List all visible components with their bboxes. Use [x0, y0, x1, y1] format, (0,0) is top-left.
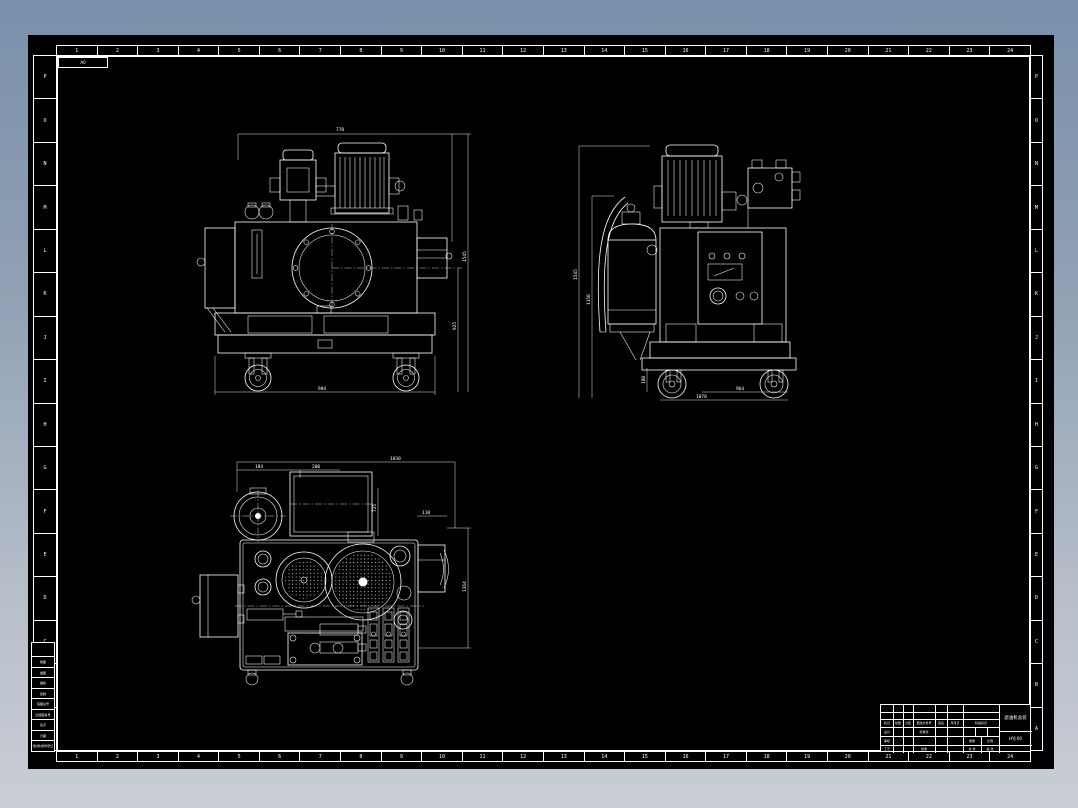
ruler-cell: 1: [56, 45, 98, 56]
ruler-cell: 9: [381, 751, 423, 762]
tb-drawing-name: 滤油机总装: [999, 705, 1032, 731]
ruler-cell: 2: [97, 45, 139, 56]
svg-text:110: 110: [422, 510, 430, 516]
tb-weight: 重量: [963, 736, 981, 745]
front-right-box: [417, 238, 452, 278]
front-main-motor: [331, 143, 405, 214]
top-motor-circle: [230, 488, 286, 542]
ruler-cell: 14: [584, 45, 626, 56]
side-caster-left: [658, 370, 686, 398]
front-left-box: [197, 228, 235, 332]
ruler-cell: 4: [178, 45, 220, 56]
ruler-cell: 13: [543, 751, 585, 762]
tb-page: 第 张: [981, 745, 999, 753]
ruler-cell: P: [33, 55, 57, 99]
ruler-cell: M: [1030, 185, 1043, 229]
ruler-cell: 21: [868, 45, 910, 56]
ruler-cell: 20: [827, 45, 869, 56]
tb-drawing-code: HYJ-00: [999, 731, 1032, 745]
ruler-cell: 17: [705, 751, 747, 762]
svg-text:184: 184: [255, 464, 263, 470]
svg-text:725: 725: [372, 504, 378, 512]
ruler-cell: B: [1030, 663, 1043, 707]
ruler-cell: 6: [259, 45, 301, 56]
ruler-cell: 8: [340, 751, 382, 762]
ruler-cell: O: [33, 98, 57, 142]
side-handle: [598, 197, 628, 332]
ruler-cell: M: [33, 185, 57, 229]
tb-design: 设计: [881, 727, 893, 736]
ruler-cell: 6: [259, 751, 301, 762]
svg-text:770: 770: [336, 127, 344, 133]
ruler-cell: 19: [786, 45, 828, 56]
ruler-cell: 9: [381, 45, 423, 56]
ruler-cell: 23: [949, 45, 991, 56]
tb-rev-zone: 分区: [903, 719, 913, 727]
svg-text:1545: 1545: [462, 251, 468, 262]
top-left-flanges: [255, 551, 271, 595]
svg-text:964: 964: [736, 386, 744, 392]
ruler-cell: 5: [218, 45, 260, 56]
strip-cell: 借(通)用件登记: [31, 740, 55, 752]
svg-text:1150: 1150: [586, 294, 592, 305]
top-valve-stacks: [368, 608, 409, 662]
cad-drawing-screenshot: { "sheet": { "size_label": "A0", "top_nu…: [0, 0, 1078, 808]
ruler-cell: 16: [665, 751, 707, 762]
strip-cell-empty: [31, 642, 55, 657]
side-cabinet: [660, 228, 786, 342]
ruler-cell: O: [1030, 98, 1043, 142]
ruler-cell: 22: [908, 45, 950, 56]
svg-text:925: 925: [452, 322, 458, 330]
front-caster-right: [393, 353, 419, 391]
tb-rev-mark: 标记: [881, 719, 893, 727]
ruler-cell: I: [1030, 359, 1043, 403]
ruler-cell: 24: [989, 45, 1031, 56]
side-view-drawing: 1545 1150 180 964 1070: [565, 130, 813, 408]
ruler-cell: 7: [299, 45, 341, 56]
svg-text:904: 904: [318, 386, 326, 392]
svg-text:1030: 1030: [390, 456, 401, 462]
svg-text:1070: 1070: [696, 394, 707, 400]
ruler-cell: 3: [137, 45, 179, 56]
gauge: [708, 264, 742, 280]
ruler-cell: 13: [543, 45, 585, 56]
top-view-drawing: 1030 184 200 110 1264 725: [190, 452, 482, 700]
svg-text:200: 200: [312, 464, 320, 470]
ruler-cell: G: [1030, 446, 1043, 490]
ruler-top: 123456789101112131415161718192021222324: [57, 45, 1031, 56]
ruler-cell: L: [33, 229, 57, 273]
ruler-cell: 7: [299, 751, 341, 762]
side-dimensions: 1545 1150 180 964 1070: [573, 146, 788, 400]
top-tank-panel: [290, 472, 372, 536]
front-view-drawing: 770 925 1545 904: [190, 118, 482, 406]
ruler-right: PONMLKJIHGFEDCBA: [1030, 56, 1043, 751]
ruler-cell: 18: [746, 751, 788, 762]
tb-stage: 阶段标记: [963, 719, 999, 727]
control-panel: [698, 232, 762, 324]
tb-approve: 批准: [913, 745, 935, 753]
ruler-cell: 14: [584, 751, 626, 762]
side-motor: [647, 145, 747, 255]
ruler-cell: E: [1030, 533, 1043, 577]
ruler-cell: 8: [340, 45, 382, 56]
top-filter-circle-large: [325, 544, 401, 620]
side-caster-right: [760, 370, 788, 398]
front-tank: [235, 222, 417, 313]
ruler-cell: J: [1030, 316, 1043, 360]
ruler-cell: 2: [97, 751, 139, 762]
ruler-cell: I: [33, 359, 57, 403]
top-pump-box: [418, 545, 449, 592]
ruler-cell: K: [1030, 272, 1043, 316]
front-base: [215, 306, 435, 353]
sheet-size-label: A0: [58, 57, 108, 68]
ruler-cell: 17: [705, 45, 747, 56]
svg-text:1264: 1264: [462, 581, 468, 592]
ruler-cell: 20: [827, 751, 869, 762]
ruler-cell: H: [33, 403, 57, 447]
tb-rev-count: 处数: [893, 719, 903, 727]
ruler-cell: 11: [462, 45, 504, 56]
ruler-cell: E: [33, 533, 57, 577]
front-dimensions: 770 925 1545 904: [215, 127, 471, 395]
ruler-cell: P: [1030, 55, 1043, 99]
ruler-cell: J: [33, 316, 57, 360]
svg-text:1545: 1545: [573, 269, 579, 280]
ruler-cell: K: [33, 272, 57, 316]
front-deck-fittings: [316, 186, 422, 220]
ruler-cell: 11: [462, 751, 504, 762]
side-tank: [608, 204, 656, 360]
ruler-cell: L: [1030, 229, 1043, 273]
ruler-cell: G: [33, 446, 57, 490]
left-signature-strip: 幅面描图描校复制底图总号旧底图总号签字日期借(通)用件登记: [31, 643, 55, 752]
ruler-cell: 3: [137, 751, 179, 762]
side-base: [642, 342, 796, 370]
ruler-cell: 15: [624, 751, 666, 762]
ruler-cell: H: [1030, 403, 1043, 447]
ruler-cell: 4: [178, 751, 220, 762]
top-casters: [246, 670, 413, 685]
ruler-cell: 16: [665, 45, 707, 56]
tb-sheets: 共 张: [963, 745, 981, 753]
top-valve-area: [246, 609, 366, 665]
tb-check: 审核: [881, 736, 893, 745]
ruler-cell: 1: [56, 751, 98, 762]
tb-standard: 标准化: [913, 727, 935, 736]
ruler-cell: 18: [746, 45, 788, 56]
ruler-cell: F: [1030, 489, 1043, 533]
ruler-cell: D: [33, 576, 57, 620]
ruler-cell: D: [1030, 576, 1043, 620]
ruler-cell: 12: [502, 751, 544, 762]
tb-scale: 比例: [981, 736, 999, 745]
svg-text:180: 180: [641, 376, 647, 384]
ruler-cell: N: [1030, 142, 1043, 186]
ruler-cell: 10: [421, 45, 463, 56]
ruler-cell: 12: [502, 45, 544, 56]
ruler-cell: F: [33, 489, 57, 533]
ruler-cell: C: [1030, 620, 1043, 664]
top-filter-circle-small: [276, 552, 332, 608]
ruler-cell: N: [33, 142, 57, 186]
title-block: 标记 处数 分区 更改文件号 签名 年月日 设计 标准化 审核 工艺 批准 阶段…: [880, 704, 1031, 752]
ruler-cell: 15: [624, 45, 666, 56]
tb-rev-doc: 更改文件号: [913, 719, 935, 727]
tb-rev-date: 年月日: [947, 719, 963, 727]
tb-rev-sign: 签名: [935, 719, 947, 727]
tb-process: 工艺: [881, 745, 893, 753]
side-bracket: [748, 160, 800, 228]
front-caster-left: [245, 353, 271, 391]
front-breathers: [245, 203, 273, 219]
ruler-cell: 10: [421, 751, 463, 762]
ruler-cell: 5: [218, 751, 260, 762]
ruler-cell: 19: [786, 751, 828, 762]
